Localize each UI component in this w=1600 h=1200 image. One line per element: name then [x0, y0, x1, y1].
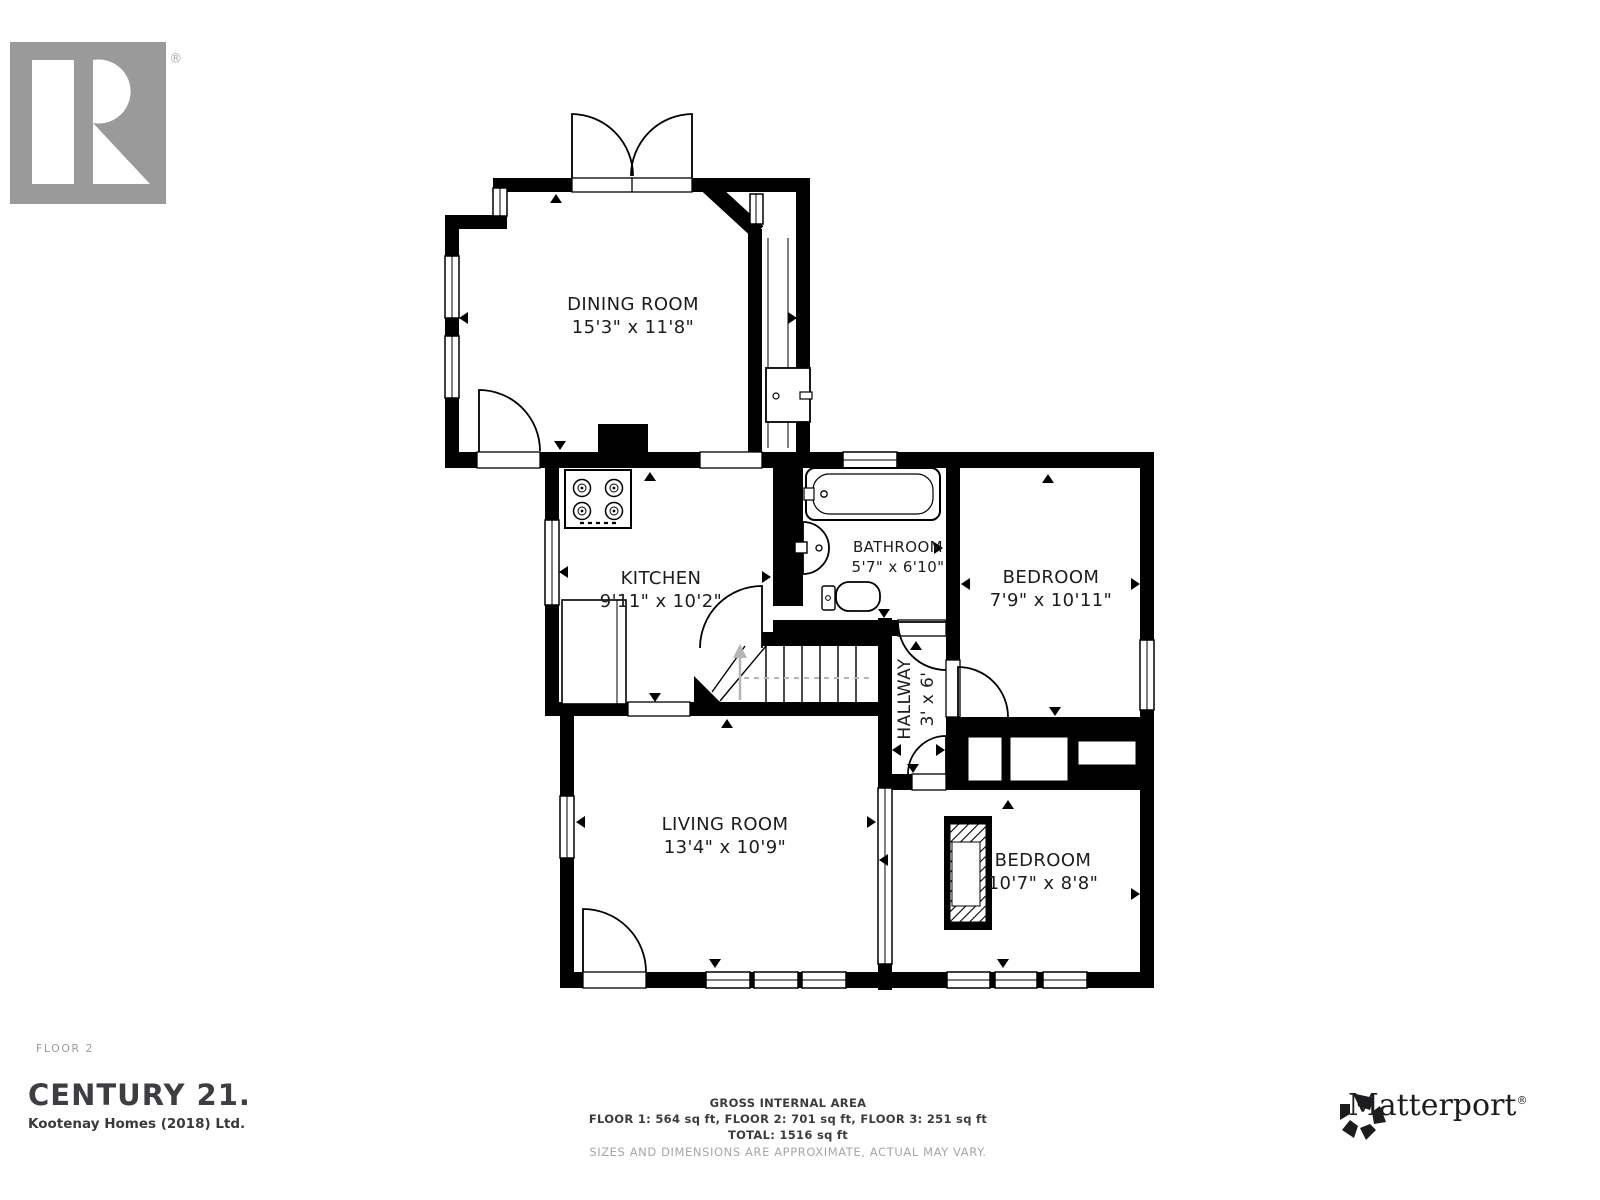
fireplace-icon	[950, 824, 986, 922]
stove-icon	[565, 470, 631, 528]
room-label-bedroom-2: BEDROOM 10'7" x 8'8"	[988, 849, 1099, 895]
room-name: HALLWAY	[894, 658, 917, 739]
area-disclaimer: SIZES AND DIMENSIONS ARE APPROXIMATE, AC…	[388, 1145, 1188, 1159]
area-floors: FLOOR 1: 564 sq ft, FLOOR 2: 701 sq ft, …	[388, 1112, 1188, 1126]
stairs-up-arrow	[733, 644, 874, 700]
entry-door-fixture	[766, 368, 812, 422]
century21-wordmark: CENTURY 21.	[28, 1078, 238, 1112]
area-summary: GROSS INTERNAL AREA FLOOR 1: 564 sq ft, …	[388, 1096, 1188, 1159]
room-dims: 13'4" x 10'9"	[662, 836, 789, 859]
area-total: TOTAL: 1516 sq ft	[388, 1128, 1188, 1142]
room-dims: 5'7" x 6'10"	[852, 557, 945, 577]
room-label-hallway: HALLWAY 3' x 6'	[894, 658, 940, 739]
room-name: BEDROOM	[990, 566, 1112, 589]
room-label-dining-room: DINING ROOM 15'3" x 11'8"	[567, 293, 699, 339]
room-dims: 7'9" x 10'11"	[990, 589, 1112, 612]
kitchen-counter	[562, 600, 626, 704]
room-name: BEDROOM	[988, 849, 1099, 872]
room-name: KITCHEN	[600, 567, 722, 590]
area-title: GROSS INTERNAL AREA	[388, 1096, 1188, 1110]
century21-subtitle: Kootenay Homes (2018) Ltd.	[28, 1116, 238, 1132]
floorplan-page: DINING ROOM 15'3" x 11'8" KITCHEN 9'11" …	[0, 0, 1600, 1200]
matterport-logo: Matterport®	[1340, 1088, 1527, 1123]
room-dims: 10'7" x 8'8"	[988, 872, 1099, 895]
room-label-bedroom-1: BEDROOM 7'9" x 10'11"	[990, 566, 1112, 612]
room-dims: 9'11" x 10'2"	[600, 590, 722, 613]
room-name: LIVING ROOM	[662, 813, 789, 836]
registered-mark: ®	[169, 52, 182, 67]
room-dims: 3' x 6'	[917, 658, 940, 739]
french-doors	[572, 114, 692, 178]
floor-label: FLOOR 2	[36, 1042, 94, 1055]
room-name: DINING ROOM	[567, 293, 699, 316]
century21-logo: CENTURY 21. Kootenay Homes (2018) Ltd.	[28, 1078, 238, 1132]
realtor-logo: REALTOR®	[8, 40, 208, 82]
realtor-r-icon	[8, 40, 168, 206]
room-name: BATHROOM	[852, 537, 945, 557]
room-label-living-room: LIVING ROOM 13'4" x 10'9"	[662, 813, 789, 859]
matterport-icon	[1340, 1088, 1392, 1144]
room-label-kitchen: KITCHEN 9'11" x 10'2"	[600, 567, 722, 613]
staircase	[712, 646, 856, 702]
toilet-icon	[822, 582, 880, 611]
room-label-bathroom: BATHROOM 5'7" x 6'10"	[852, 537, 945, 577]
floorplan-drawing	[0, 0, 1600, 1200]
room-dims: 15'3" x 11'8"	[567, 316, 699, 339]
bathtub-icon	[804, 468, 940, 520]
registered-mark: ®	[1516, 1094, 1527, 1107]
